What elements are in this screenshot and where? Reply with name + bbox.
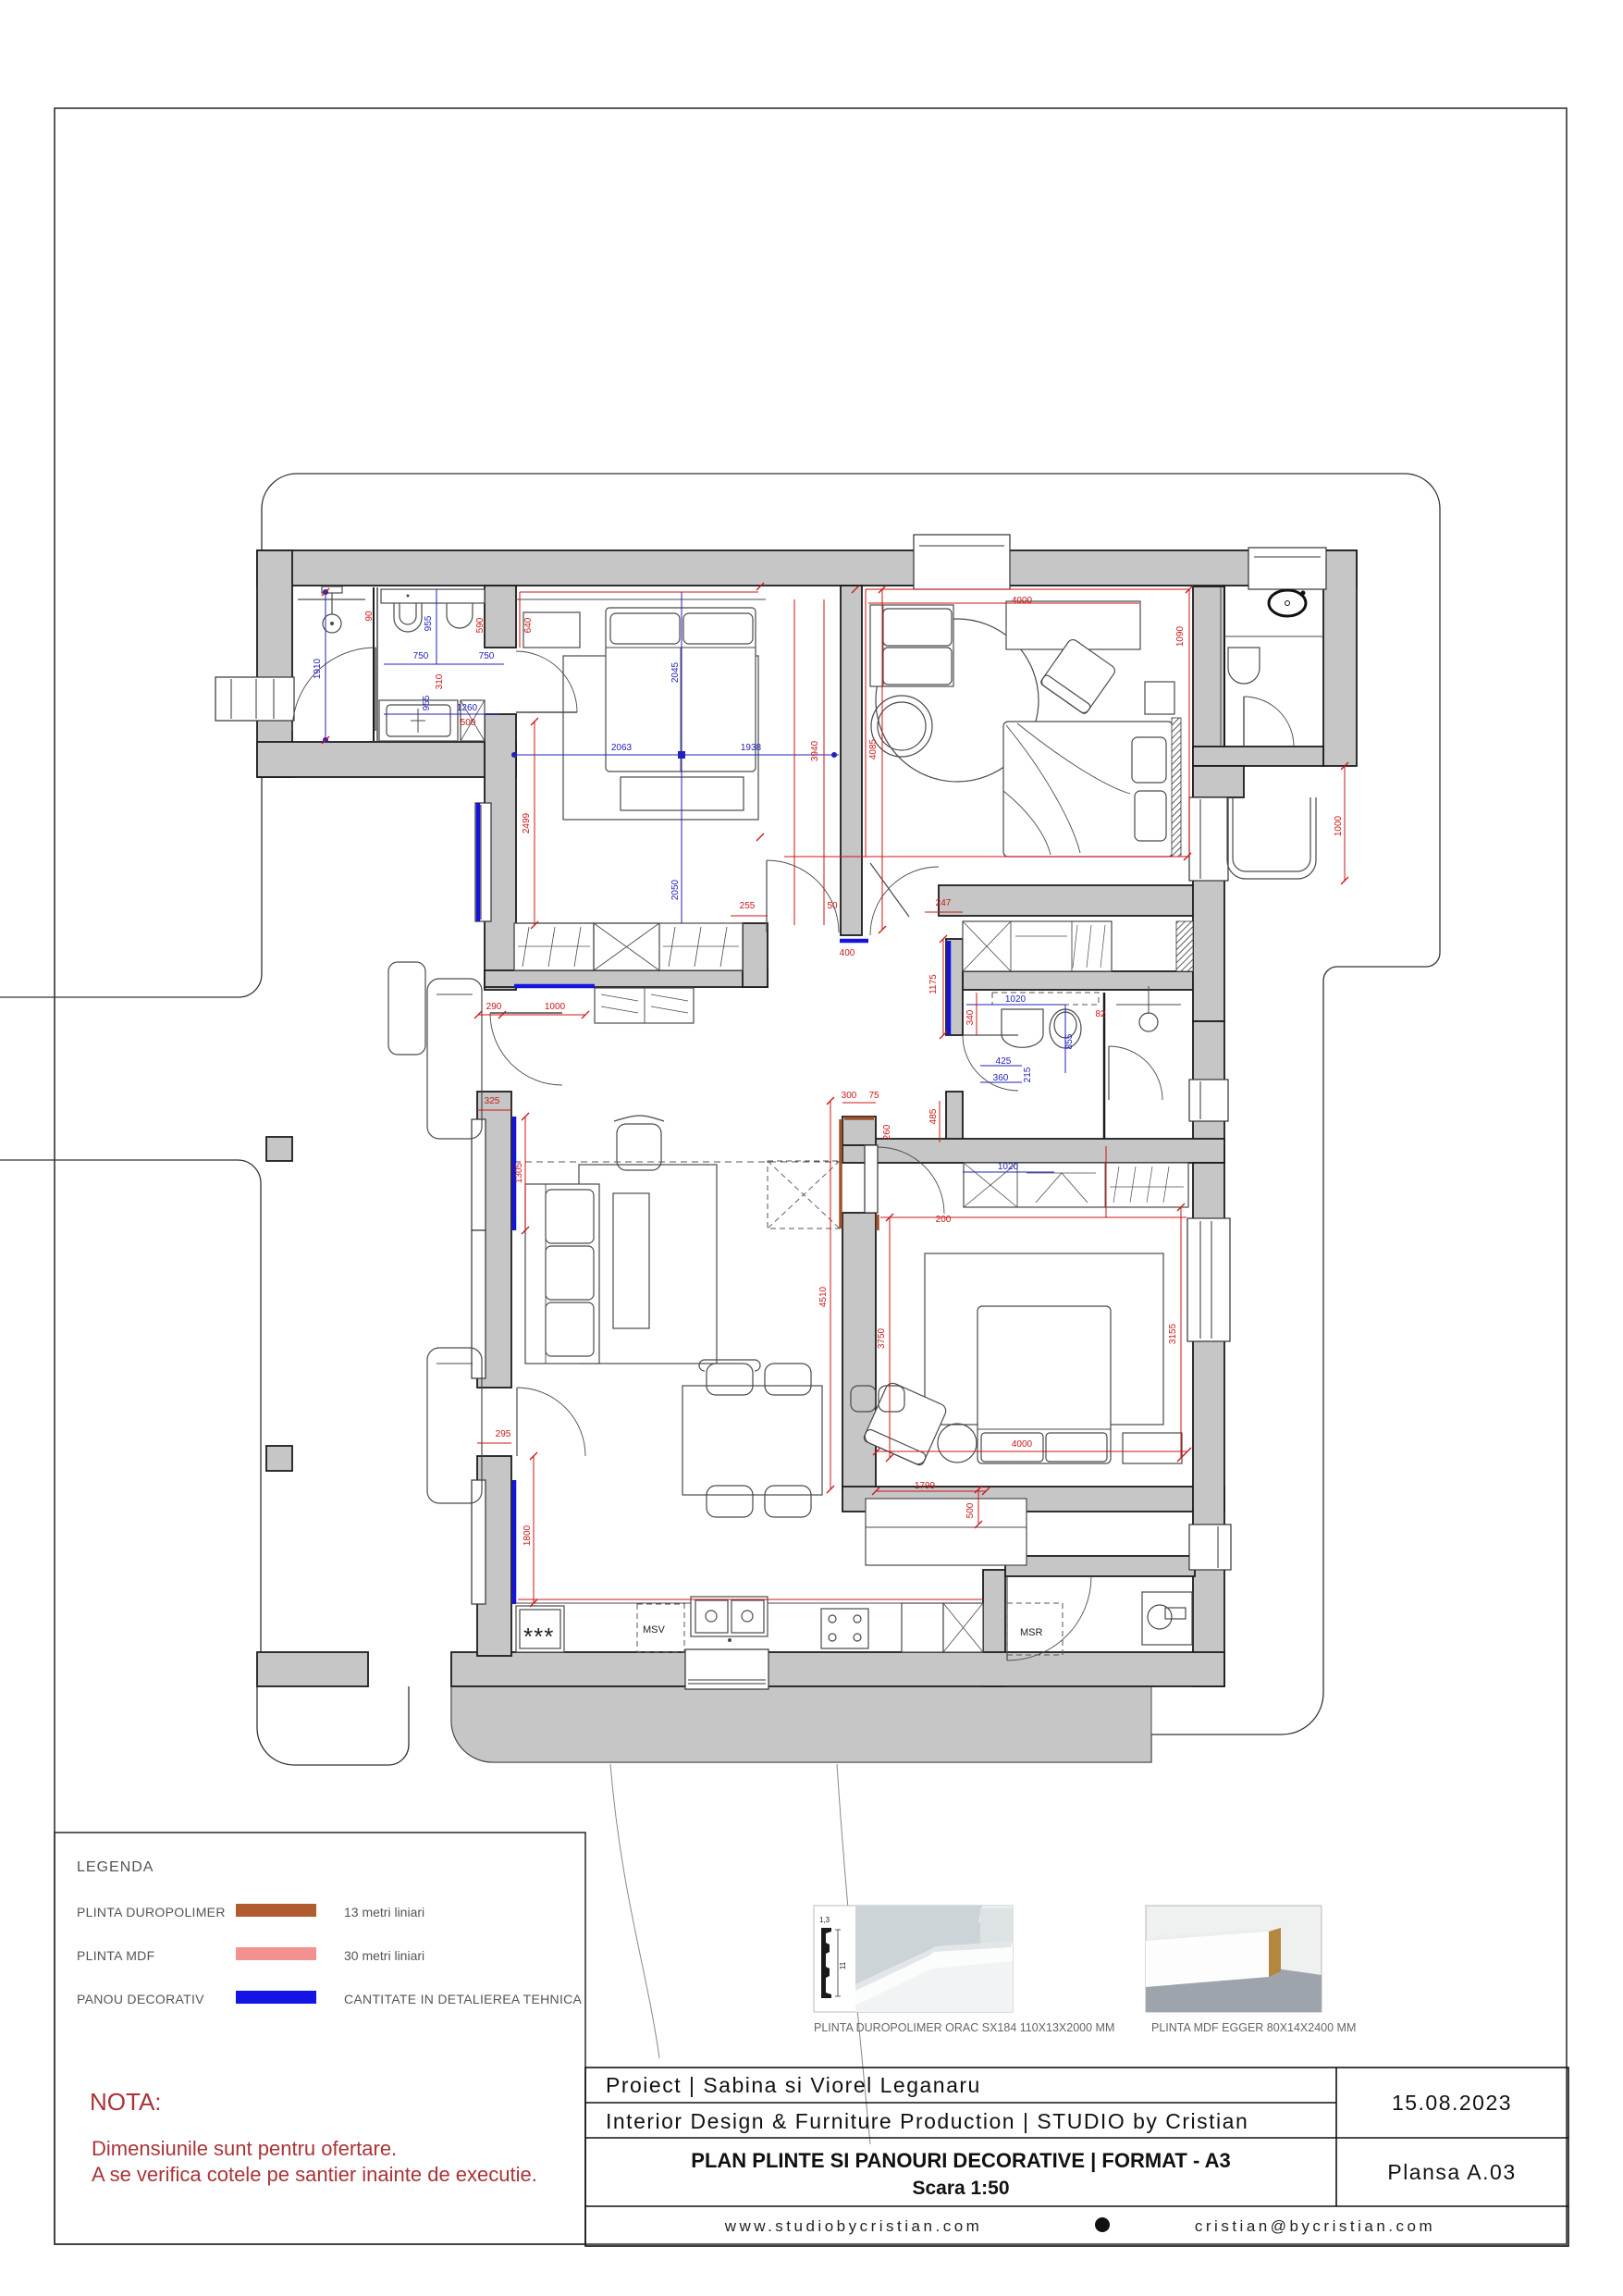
svg-text:1799: 1799 <box>915 1481 936 1491</box>
svg-text:PLINTA MDF: PLINTA MDF <box>77 1948 154 1963</box>
svg-text:260: 260 <box>882 1124 892 1140</box>
svg-text:290: 290 <box>486 1002 502 1012</box>
svg-text:360: 360 <box>993 1073 1009 1083</box>
svg-text:Plansa A.03: Plansa A.03 <box>1387 2160 1516 2184</box>
svg-text:4510: 4510 <box>818 1286 829 1307</box>
svg-text:640: 640 <box>523 617 534 633</box>
svg-text:750: 750 <box>413 651 429 661</box>
svg-text:13 metri liniari: 13 metri liniari <box>344 1905 424 1920</box>
svg-text:90: 90 <box>364 611 375 622</box>
svg-text:PANOU DECORATIV: PANOU DECORATIV <box>77 1992 204 2006</box>
svg-text:955: 955 <box>422 695 432 710</box>
svg-text:2045: 2045 <box>670 661 681 683</box>
svg-text:855: 855 <box>1064 1033 1075 1049</box>
svg-text:***: *** <box>523 1623 554 1650</box>
svg-text:A se verifica cotele pe santie: A se verifica cotele pe santier inainte … <box>92 2163 537 2186</box>
svg-text:4085: 4085 <box>868 738 879 759</box>
svg-text:82: 82 <box>1095 1009 1106 1019</box>
svg-text:300: 300 <box>842 1091 857 1101</box>
svg-text:50: 50 <box>827 901 838 911</box>
svg-text:500: 500 <box>461 718 476 728</box>
svg-text:CANTITATE IN DETALIEREA TEHNIC: CANTITATE IN DETALIEREA TEHNICA <box>344 1992 583 2006</box>
svg-text:200: 200 <box>936 1215 952 1225</box>
svg-text:3750: 3750 <box>877 1327 887 1349</box>
svg-text:PLINTA MDF EGGER 80X14X2400 M: PLINTA MDF EGGER 80X14X2400 MM <box>1151 2021 1356 2034</box>
svg-text:325: 325 <box>485 1096 500 1106</box>
svg-text:Scara 1:50: Scara 1:50 <box>912 2178 1009 2199</box>
svg-text:425: 425 <box>996 1056 1012 1067</box>
svg-text:PLINTA DUROPOLIMER ORAC SX184: PLINTA DUROPOLIMER ORAC SX184 110X13X200… <box>814 2021 1114 2034</box>
svg-text:247: 247 <box>936 898 952 908</box>
svg-text:cristian@bycristian.com: cristian@bycristian.com <box>1195 2217 1435 2235</box>
svg-text:NOTA:: NOTA: <box>90 2088 162 2116</box>
svg-text:15.08.2023: 15.08.2023 <box>1392 2091 1512 2115</box>
svg-text:1260: 1260 <box>457 703 478 713</box>
svg-text:MSR: MSR <box>1020 1627 1043 1638</box>
svg-text:255: 255 <box>740 901 756 911</box>
svg-text:Dimensiunile sunt pentru ofert: Dimensiunile sunt pentru ofertare. <box>92 2137 397 2160</box>
svg-text:1910: 1910 <box>313 658 323 679</box>
svg-text:2050: 2050 <box>670 879 681 900</box>
svg-text:LEGENDA: LEGENDA <box>77 1859 154 1875</box>
svg-text:3155: 3155 <box>1168 1323 1178 1344</box>
svg-text:2499: 2499 <box>522 812 532 833</box>
svg-text:295: 295 <box>496 1429 511 1439</box>
svg-text:30 metri liniari: 30 metri liniari <box>344 1948 424 1963</box>
svg-text:Proiect | Sabina si Viorel Leg: Proiect | Sabina si Viorel Leganaru <box>606 2073 981 2097</box>
svg-text:1,3: 1,3 <box>819 1916 830 1924</box>
svg-text:1305: 1305 <box>514 1162 524 1183</box>
svg-text:215: 215 <box>1023 1067 1033 1082</box>
svg-text:750: 750 <box>479 651 495 661</box>
svg-text:1938: 1938 <box>741 743 762 753</box>
svg-text:500: 500 <box>965 1502 976 1518</box>
svg-text:485: 485 <box>928 1108 939 1124</box>
svg-text:590: 590 <box>475 617 486 633</box>
svg-text:1000: 1000 <box>545 1002 566 1012</box>
svg-text:4000: 4000 <box>1012 596 1033 606</box>
svg-text:11: 11 <box>839 1961 847 1969</box>
svg-text:1020: 1020 <box>1005 994 1027 1005</box>
svg-text:1090: 1090 <box>1175 625 1186 647</box>
svg-text:955: 955 <box>424 615 434 631</box>
svg-text:3940: 3940 <box>810 740 820 761</box>
svg-text:PLAN PLINTE SI PANOURI DECORAT: PLAN PLINTE SI PANOURI DECORATIVE | FORM… <box>691 2149 1230 2172</box>
svg-text:2063: 2063 <box>611 743 633 753</box>
svg-text:340: 340 <box>965 1009 976 1025</box>
svg-text:www.studiobycristian.com: www.studiobycristian.com <box>724 2217 983 2235</box>
svg-text:1020: 1020 <box>998 1162 1019 1172</box>
svg-text:400: 400 <box>840 948 855 958</box>
svg-text:1000: 1000 <box>1334 815 1344 836</box>
svg-text:1800: 1800 <box>523 1524 533 1546</box>
svg-text:PLINTA DUROPOLIMER: PLINTA DUROPOLIMER <box>77 1905 226 1920</box>
svg-text:310: 310 <box>435 673 445 689</box>
svg-text:MSV: MSV <box>643 1624 666 1636</box>
svg-text:Interior Design & Furniture Pr: Interior Design & Furniture Production |… <box>606 2109 1248 2133</box>
svg-text:75: 75 <box>868 1091 879 1101</box>
svg-text:4000: 4000 <box>1012 1439 1033 1450</box>
svg-text:1175: 1175 <box>928 974 939 994</box>
